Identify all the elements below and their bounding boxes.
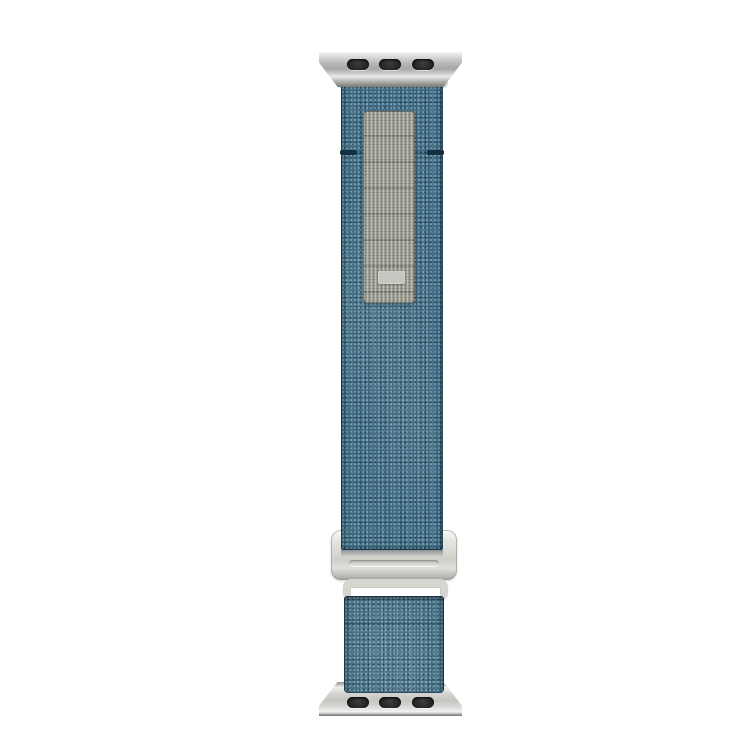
lug-slot-icon [347, 697, 369, 708]
lower-strap-seam [344, 622, 444, 624]
fabric-edge-shadow [341, 550, 443, 557]
lug-slot-icon [412, 697, 434, 708]
top-lug-adapter [319, 52, 462, 87]
buckle-crease [349, 560, 439, 567]
lug-slot-icon [412, 59, 434, 70]
seam-notch-left [340, 150, 357, 155]
seam-notch-right [427, 150, 444, 155]
lower-strap [344, 596, 444, 693]
lug-slot-icon [379, 697, 401, 708]
product-photo [0, 0, 750, 750]
upper-strap [341, 74, 443, 550]
loop-panel-tab [378, 271, 405, 284]
lug-slot-icon [347, 59, 369, 70]
hook-loop-panel [363, 111, 415, 303]
lug-slot-icon [379, 59, 401, 70]
